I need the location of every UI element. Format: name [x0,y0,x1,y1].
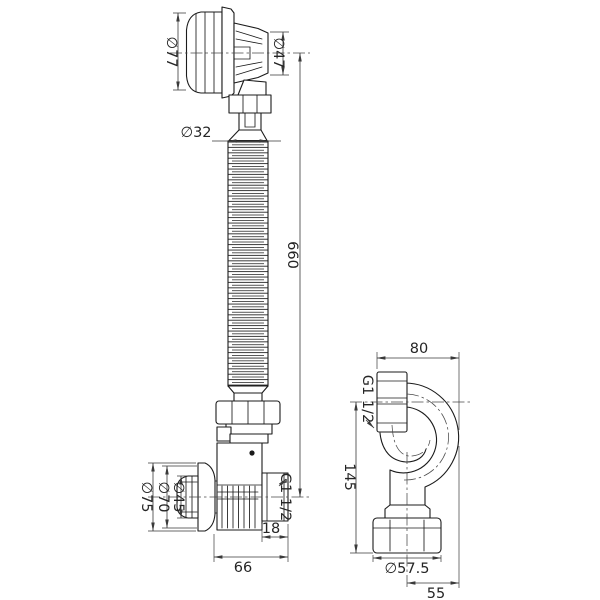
dim-flange-outer-diameter: ∅75 [138,481,154,512]
dim-trap-thread: G1 1/2 [359,375,375,423]
flexible-hose [228,141,268,386]
dim-plug-diameter: ∅45 [170,481,186,512]
dim-hose-length: 660 [284,241,300,269]
dim-body-width: 66 [234,560,252,576]
dim-trap-nut-diameter: ∅57.5 [385,561,430,577]
dim-head-diameter: ∅47 [270,37,286,68]
dim-trap-height: 145 [341,463,357,491]
dim-hose-diameter: ∅32 [180,125,211,141]
dim-trap-outlet-offset: 55 [427,586,445,600]
overflow-head [187,7,272,141]
technical-drawing: ∅77 ∅47 ∅32 660 ∅75 ∅70 ∅45 G1 1/2 18 66 [0,0,600,600]
set-screw [249,450,254,455]
dim-cap-diameter: ∅77 [163,36,179,67]
dim-outlet-thread-length: 18 [262,521,280,537]
drawing-sheet: ∅77 ∅47 ∅32 660 ∅75 ∅70 ∅45 G1 1/2 18 66 [0,0,600,600]
outlet-bend [373,372,459,553]
dim-trap-width: 80 [410,341,428,357]
dim-flange-inner-diameter: ∅70 [155,481,171,512]
